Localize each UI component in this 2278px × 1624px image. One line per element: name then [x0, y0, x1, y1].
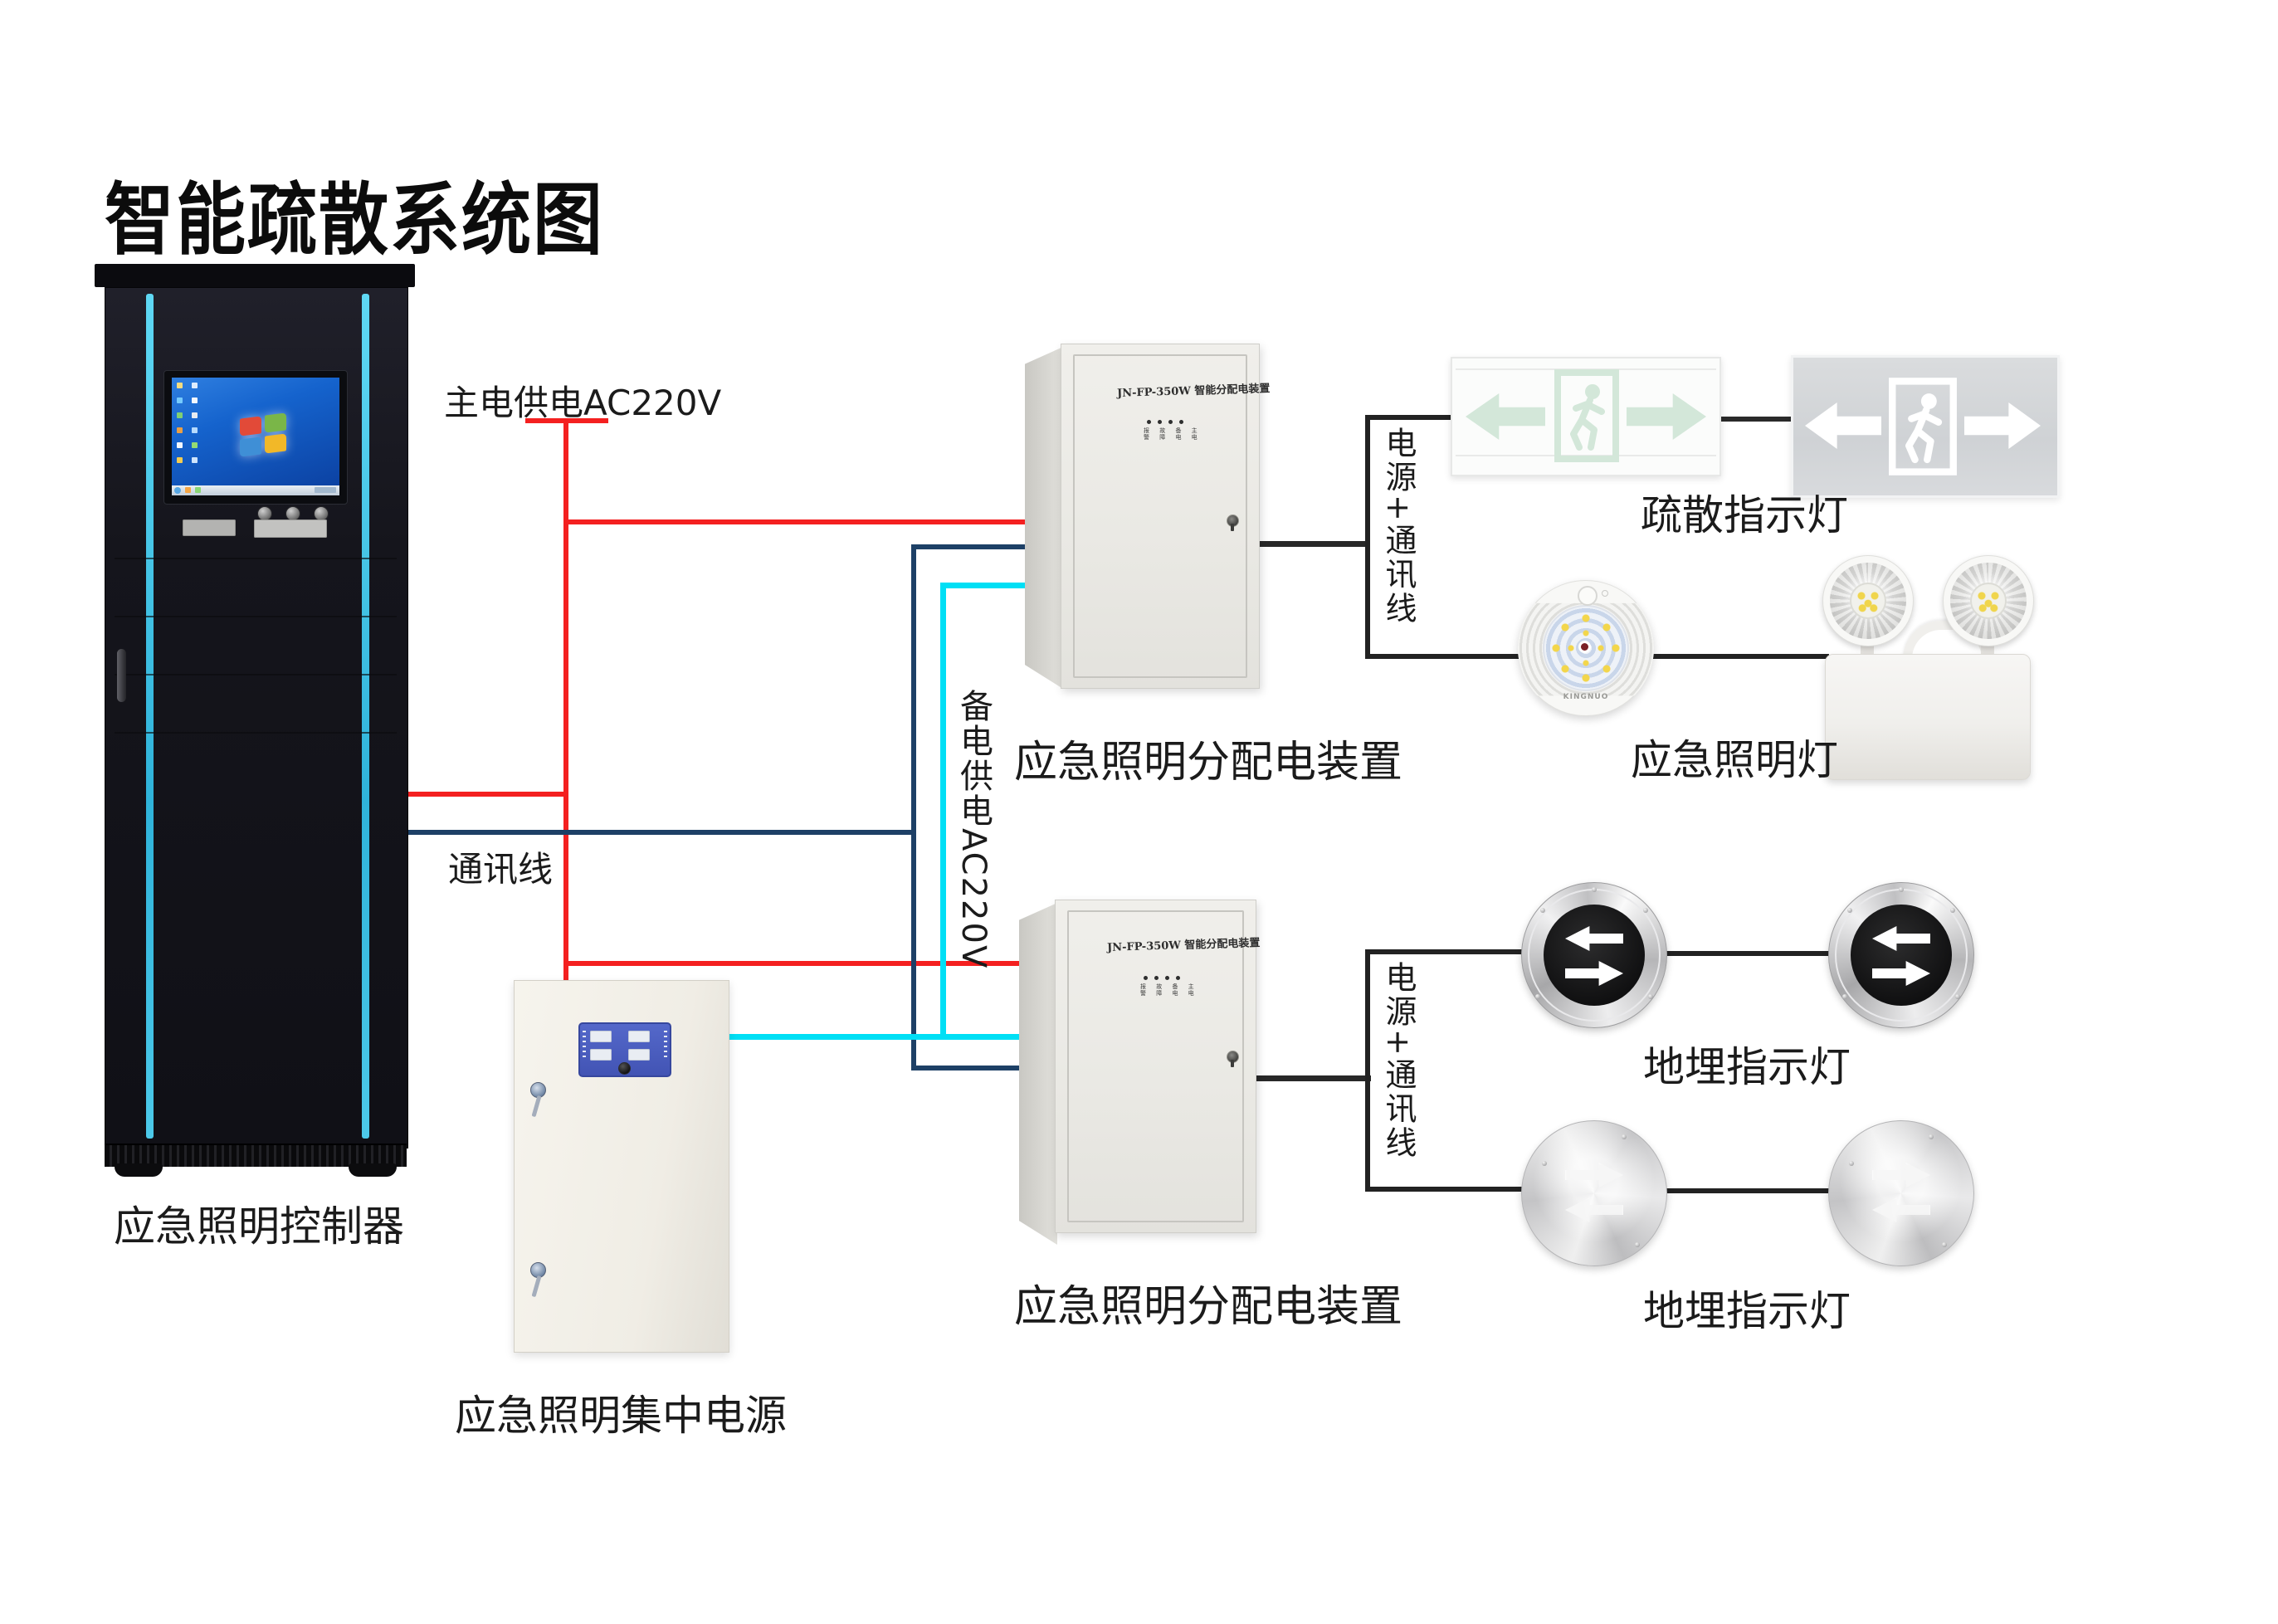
connector-buried1a-to-1b [1664, 951, 1830, 956]
bracket1-label: 电源+通讯线 [1374, 427, 1414, 656]
page-title: 智能疏散系统图 [105, 158, 604, 271]
round-emergency-lamp: KINGNUO [1518, 580, 1654, 716]
bracket1-top-branch [1365, 415, 1453, 420]
comm-line-vertical [911, 544, 916, 1070]
twin-lamp-head-right [1943, 555, 2034, 646]
evacuation-system-diagram: 智能疏散系统图 电源+通讯线 电源+通讯线 主电供电AC220V 通讯线 备电供… [0, 0, 2278, 1624]
running-man-icon [1888, 376, 1958, 477]
dist1-label: 应急照明分配电装置 [1013, 727, 1403, 789]
buried-arrow-right-icon [1565, 1163, 1623, 1188]
rack-foot [349, 1163, 397, 1177]
dist2-led-cluster: 报 故 备 主 警 障 电 电 [1140, 968, 1198, 997]
rack-monitor [163, 370, 348, 505]
buried-light-1a [1521, 882, 1667, 1028]
connector-dist2-to-bracket [1255, 1075, 1371, 1081]
round-lamp-test-button [1578, 586, 1598, 606]
keyhole-slot [1231, 524, 1234, 531]
running-man-icon [1554, 368, 1620, 463]
psu-knob-icon [618, 1062, 631, 1075]
rack-shelf-line [115, 558, 397, 559]
round-lamp-brand: KINGNUO [1518, 693, 1654, 701]
rack-door-handle [117, 649, 126, 702]
rack-shelf-line [115, 674, 397, 675]
connector-sign1-to-sign2 [1716, 417, 1793, 422]
controller-label: 应急照明控制器 [110, 1193, 408, 1253]
exit-arrow-left-icon [1805, 402, 1881, 449]
buried-arrow-left-icon [1872, 1197, 1930, 1222]
rack-shelf-line [115, 616, 397, 617]
dist1-led-row2: 警 障 电 电 [1144, 434, 1202, 441]
main-power-line-to-controller [405, 792, 568, 797]
dist2-led-row2: 警 障 电 电 [1140, 990, 1198, 997]
connector-buried2a-to-2b [1664, 1188, 1830, 1193]
dist2-side [1019, 903, 1057, 1245]
main-power-line-vertical [563, 418, 568, 983]
monitor-screen [172, 378, 339, 495]
exit-arrow-right-icon [1964, 402, 2041, 449]
evac-sign-label: 疏散指示灯 [1637, 482, 1852, 542]
bracket2-label: 电源+通讯线 [1374, 961, 1414, 1185]
buried-light-label-2: 地埋指示灯 [1639, 1278, 1855, 1338]
psu-display-panel [578, 1022, 671, 1077]
central-power-label: 应急照明集中电源 [451, 1383, 791, 1442]
bracket2-bottom-branch [1365, 1187, 1524, 1192]
keyhole-slot [1231, 1060, 1234, 1067]
windows-logo-icon [240, 414, 290, 457]
backup-power-label: 备电供电AC220V [953, 689, 991, 1012]
evac-sign-2 [1791, 355, 2060, 498]
rack-foot [115, 1163, 163, 1177]
emergency-lamp-label: 应急照明灯 [1627, 727, 1842, 787]
dist2-label: 应急照明分配电装置 [1013, 1271, 1403, 1334]
buried-arrow-left-icon [1565, 1197, 1623, 1222]
rack-led-strip-left [146, 294, 154, 1139]
evac-sign-1 [1451, 357, 1721, 476]
main-power-line-to-dist1 [566, 519, 1047, 524]
exit-arrow-right-icon [1627, 393, 1706, 440]
twin-lamp-body [1825, 654, 2031, 780]
bracket1-vertical [1365, 415, 1370, 659]
buried-light-2b [1828, 1120, 1974, 1266]
dist1-side [1025, 347, 1063, 689]
psu-key-icon [532, 1095, 542, 1117]
round-lamp-center-dot [1581, 643, 1588, 651]
round-lamp-indicator [1602, 590, 1608, 597]
monitor-taskbar [172, 485, 339, 495]
bracket2-vertical [1365, 949, 1370, 1192]
main-power-label: 主电供电AC220V [444, 375, 721, 426]
dist1-led-cluster: 报 故 备 主 警 障 电 电 [1144, 412, 1202, 441]
rack-keypad-right [254, 519, 327, 538]
connector-dist1-to-bracket [1255, 541, 1368, 547]
buried-light-2a [1521, 1120, 1667, 1266]
backup-line-from-psu [724, 1034, 1048, 1040]
twin-lamp-head-left [1822, 555, 1914, 646]
connector-roundlamp-to-twinlamp [1650, 654, 1829, 659]
psu-key-icon [532, 1275, 542, 1297]
central-power-box [514, 980, 729, 1353]
rack-top-cap [95, 264, 415, 287]
rack-shelf-line [115, 732, 397, 734]
dist1-led-row1: 报 故 备 主 [1144, 427, 1202, 434]
dist2-led-row1: 报 故 备 主 [1140, 983, 1198, 990]
buried-light-label-1: 地埋指示灯 [1639, 1034, 1855, 1094]
buried-light-1b [1828, 882, 1974, 1028]
bracket2-top-branch [1365, 949, 1524, 954]
rack-led-strip-right [362, 294, 369, 1139]
comm-label: 通讯线 [448, 841, 553, 892]
exit-arrow-left-icon [1466, 393, 1545, 440]
buried-arrow-right-icon [1872, 1163, 1930, 1188]
rack-keypad-left [183, 519, 236, 536]
comm-line-from-controller [405, 830, 916, 835]
backup-line-vertical [940, 583, 946, 1040]
